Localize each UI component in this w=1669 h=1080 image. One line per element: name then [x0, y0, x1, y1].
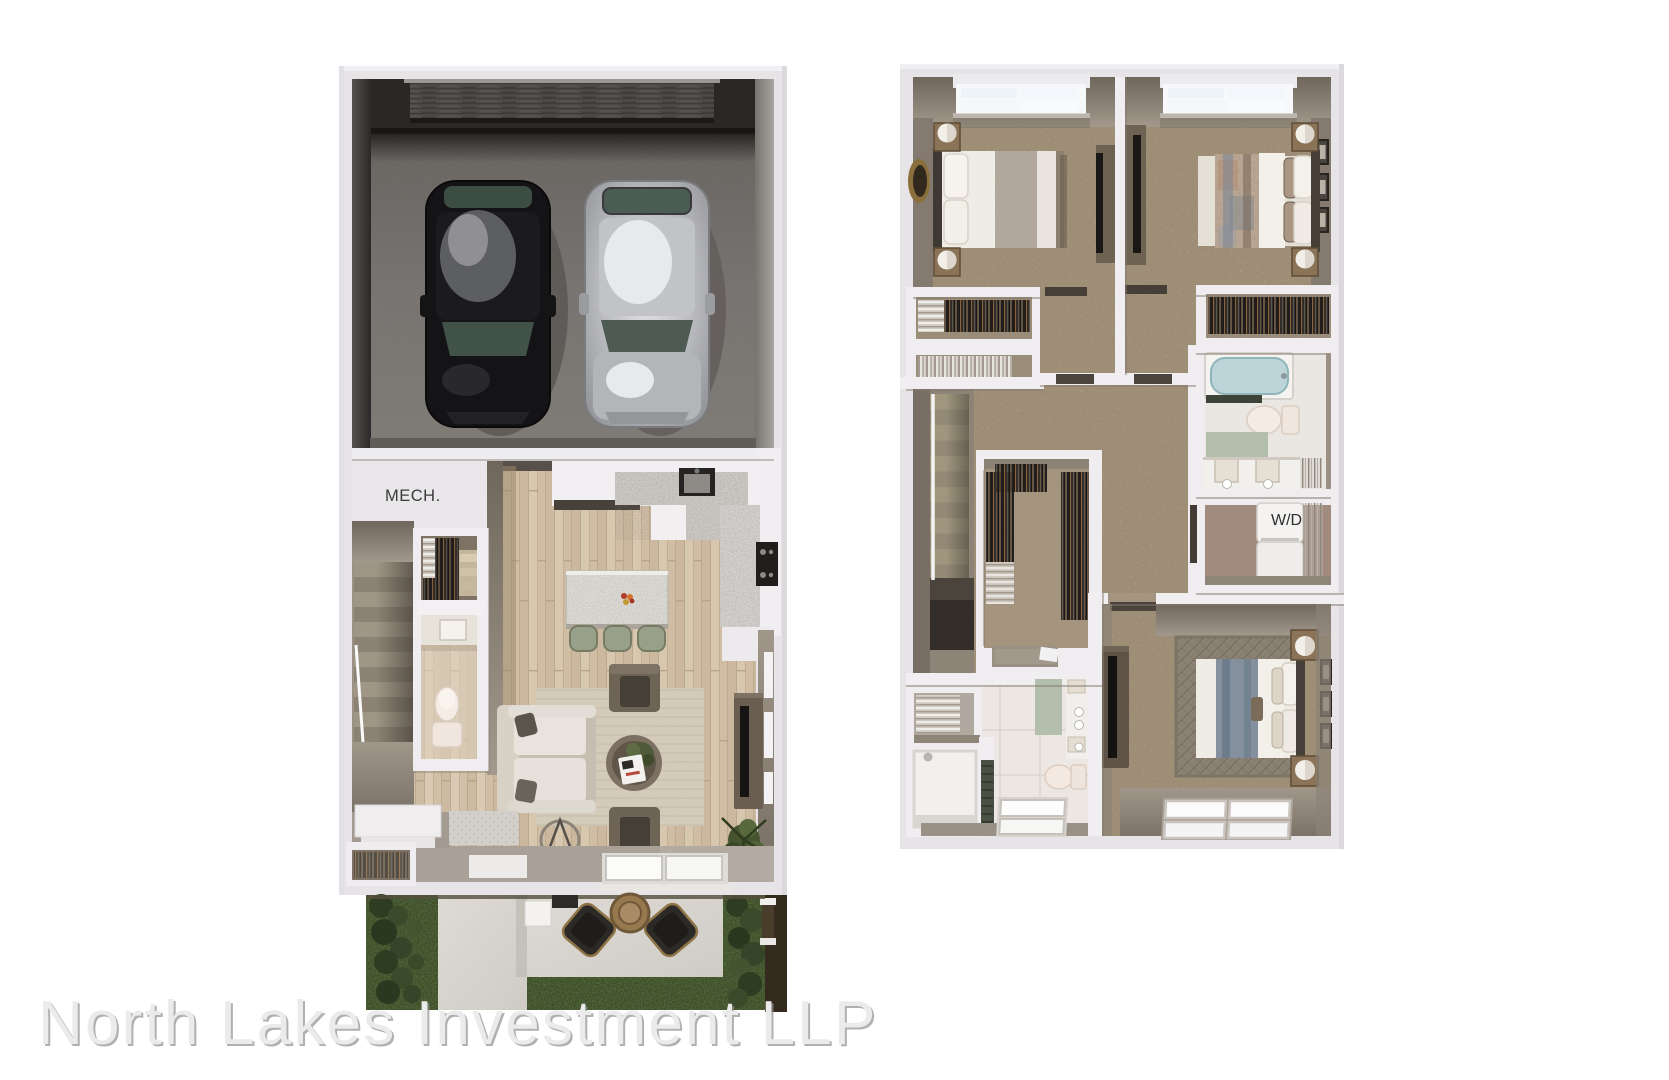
svg-text:W/D: W/D [1271, 512, 1302, 529]
svg-text:North Lakes Investment LLP: North Lakes Investment LLP [38, 989, 878, 1058]
svg-text:MECH.: MECH. [385, 487, 441, 505]
